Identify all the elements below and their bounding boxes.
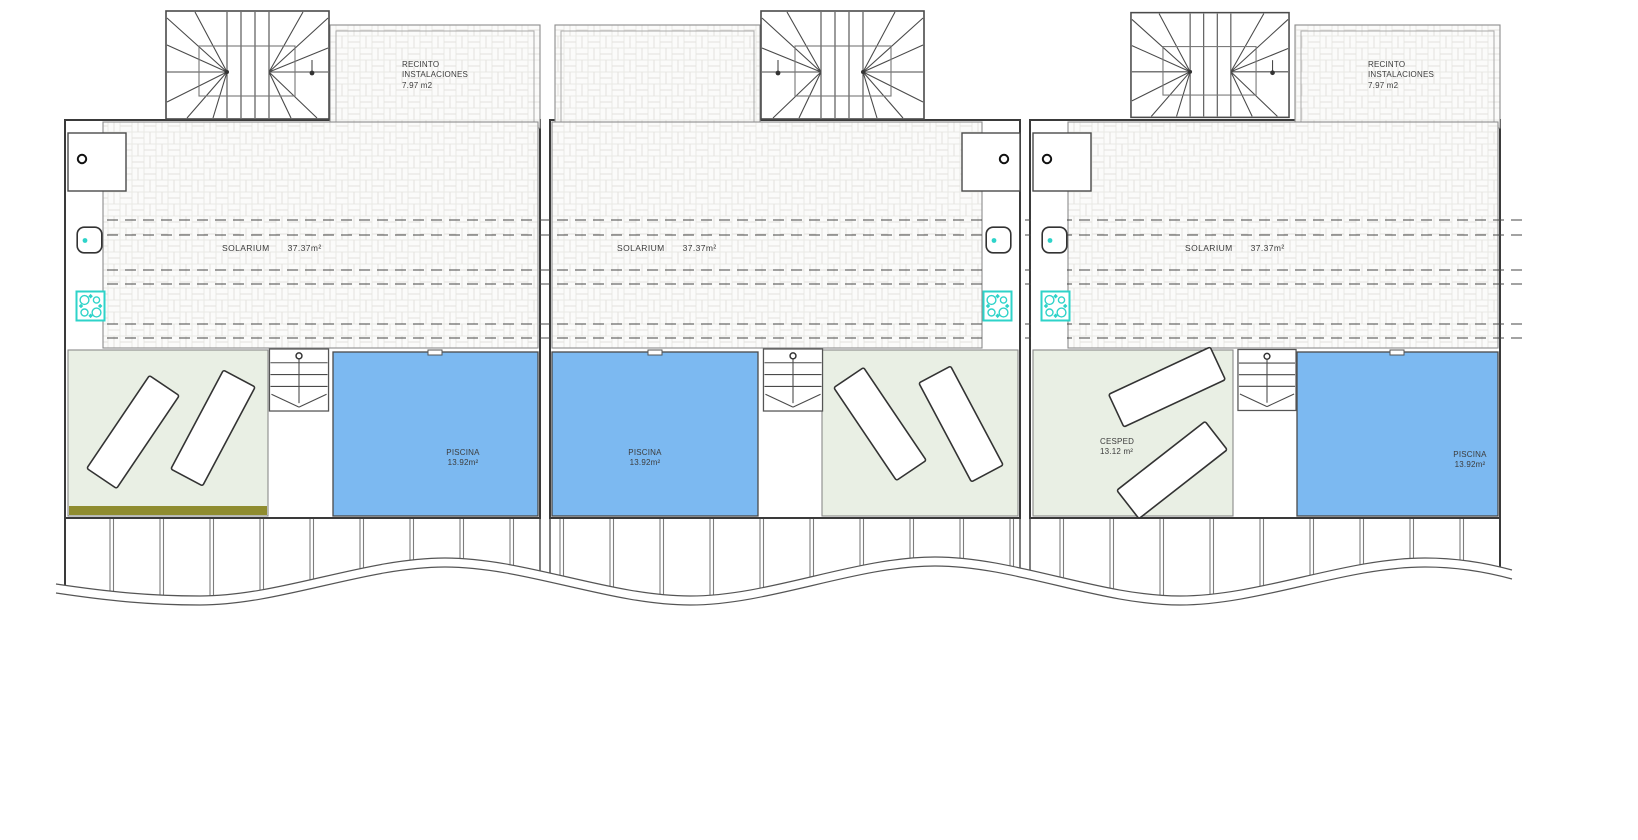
drain-icon	[78, 155, 86, 163]
piscina-area: 13.92m²	[1420, 460, 1520, 470]
stair-icon	[166, 11, 329, 119]
floor-plan-page: RECINTO INSTALACIONES 7.97 m2 RECINTO IN…	[0, 0, 1638, 840]
sink-icon	[1042, 227, 1067, 253]
solarium-area: 37.37m²	[288, 243, 322, 254]
service-box	[68, 133, 126, 191]
service-box	[962, 133, 1020, 191]
solarium-name: SOLARIUM	[1185, 243, 1233, 254]
fence-band	[56, 519, 1512, 645]
piscina-label-unit-3: PISCINA 13.92m²	[1420, 450, 1520, 471]
recinto-label-unit-3: RECINTO INSTALACIONES 7.97 m2	[1368, 60, 1434, 91]
pool-skimmer	[428, 350, 442, 355]
piscina-name: PISCINA	[595, 448, 695, 458]
solarium-label-unit-1: SOLARIUM 37.37m²	[222, 243, 322, 254]
floor-plan-drawing	[0, 0, 1638, 840]
stair-icon	[1238, 350, 1296, 411]
stair-icon	[763, 349, 822, 411]
piscina-area: 13.92m²	[413, 458, 513, 468]
cesped-name: CESPED	[1100, 437, 1134, 447]
stair-icon	[1131, 13, 1289, 118]
drain-icon	[1000, 155, 1008, 163]
sink-icon	[986, 227, 1011, 253]
solarium-label-unit-3: SOLARIUM 37.37m²	[1185, 243, 1285, 254]
piscina-area: 13.92m²	[595, 458, 695, 468]
piscina-name: PISCINA	[1420, 450, 1520, 460]
solarium-name: SOLARIUM	[617, 243, 665, 254]
service-box	[1033, 133, 1091, 191]
pool-skimmer	[648, 350, 662, 355]
recinto-label-unit-1: RECINTO INSTALACIONES 7.97 m2	[402, 60, 468, 91]
solarium-area: 37.37m²	[1251, 243, 1285, 254]
solarium-label-unit-2: SOLARIUM 37.37m²	[617, 243, 717, 254]
piscina-name: PISCINA	[413, 448, 513, 458]
cooktop-icon	[1042, 292, 1070, 321]
drain-icon	[1043, 155, 1051, 163]
cesped-area: 13.12 m²	[1100, 447, 1134, 457]
cesped-label-unit-3: CESPED 13.12 m²	[1100, 437, 1134, 458]
solarium-name: SOLARIUM	[222, 243, 270, 254]
lawn-edge-strip	[69, 506, 267, 515]
cooktop-icon	[984, 292, 1012, 321]
sink-icon	[77, 227, 102, 253]
pool-skimmer	[1390, 350, 1404, 355]
piscina-label-unit-2: PISCINA 13.92m²	[595, 448, 695, 469]
stair-icon	[761, 11, 924, 119]
piscina-label-unit-1: PISCINA 13.92m²	[413, 448, 513, 469]
solarium-area: 37.37m²	[683, 243, 717, 254]
stair-icon	[269, 349, 328, 411]
cooktop-icon	[77, 292, 105, 321]
